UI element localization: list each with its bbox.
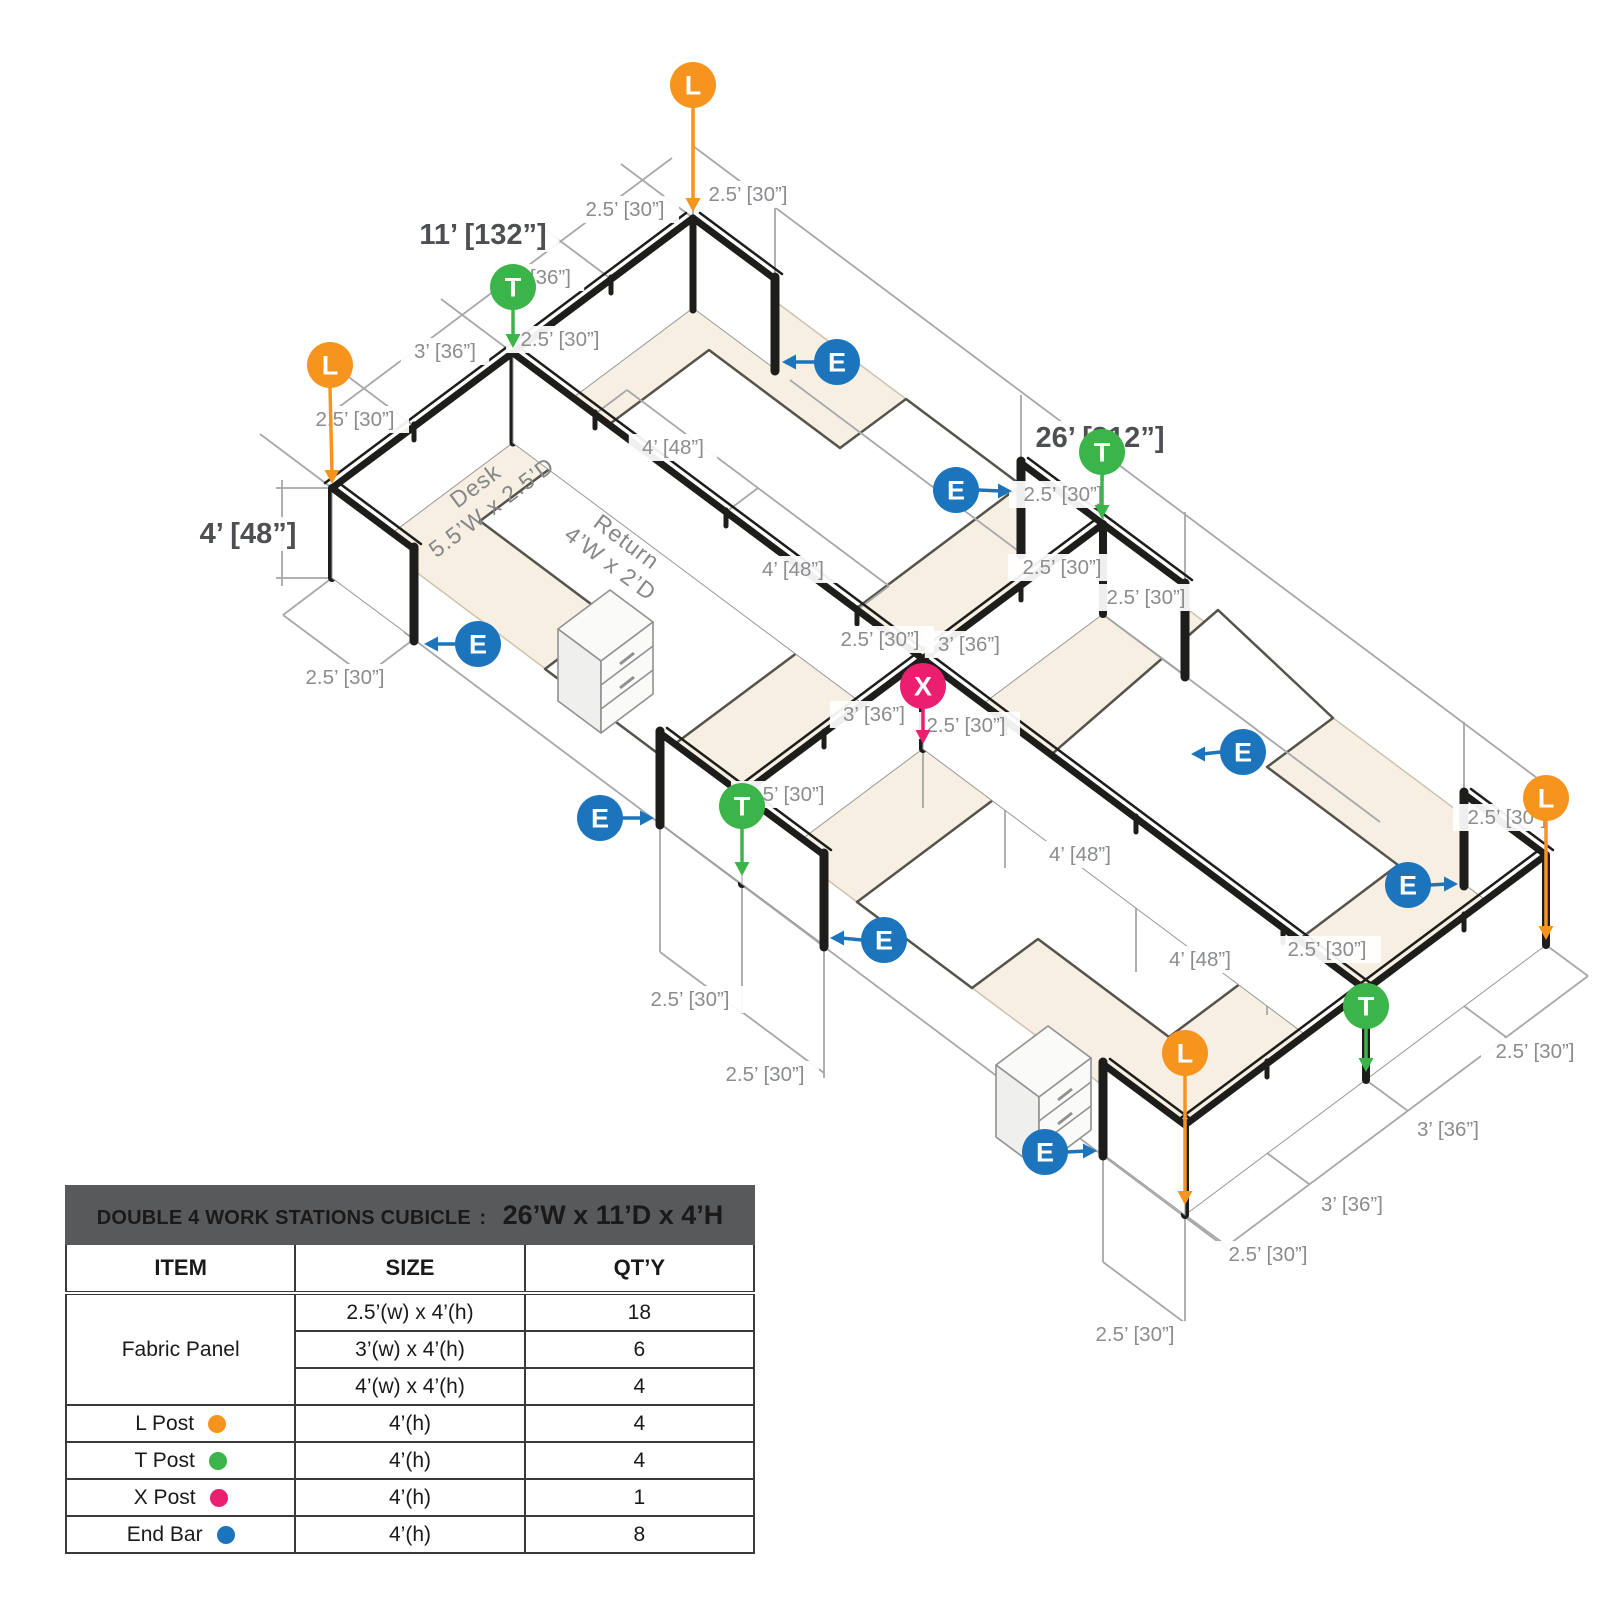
svg-text:4’ [48”]: 4’ [48”] xyxy=(1169,948,1231,971)
svg-text:2.5’ [30”]: 2.5’ [30”] xyxy=(1495,1040,1574,1063)
table-row: X Post 4’(h) 1 xyxy=(66,1479,754,1516)
dim-label: 2.5’ [30”] xyxy=(826,626,934,653)
svg-text:2.5’ [30”]: 2.5’ [30”] xyxy=(926,714,1005,737)
post-marker-e: E xyxy=(424,621,501,667)
dim-label: 4’ [48”] xyxy=(1036,841,1124,868)
svg-text:E: E xyxy=(591,804,609,834)
table-row: L Post 4’(h) 4 xyxy=(66,1405,754,1442)
svg-text:L: L xyxy=(322,351,339,381)
svg-text:2.5’ [30”]: 2.5’ [30”] xyxy=(725,1063,804,1086)
dim-label: 2.5’ [30”] xyxy=(1273,936,1381,963)
end-bar-size: 4’(h) xyxy=(295,1516,524,1553)
fabric-qty-2: 4 xyxy=(525,1368,754,1405)
svg-text:4’ [48”]: 4’ [48”] xyxy=(642,436,704,459)
fabric-panel-item: Fabric Panel xyxy=(66,1293,295,1405)
svg-text:L: L xyxy=(1177,1039,1194,1069)
svg-text:11’ [132”]: 11’ [132”] xyxy=(419,219,546,251)
svg-text:3’ [36”]: 3’ [36”] xyxy=(1321,1193,1383,1216)
fabric-qty-0: 18 xyxy=(525,1293,754,1331)
fabric-size-1: 3’(w) x 4’(h) xyxy=(295,1331,524,1368)
dim-label: 2.5’ [30”] xyxy=(301,406,409,433)
dim-label: 2.5’ [30”] xyxy=(694,181,802,208)
col-item: ITEM xyxy=(66,1244,295,1293)
dim-label: 2.5’ [30”] xyxy=(711,1061,819,1088)
t-post-size: 4’(h) xyxy=(295,1442,524,1479)
l-post-qty: 4 xyxy=(525,1405,754,1442)
svg-text:4’ [48”]: 4’ [48”] xyxy=(200,518,297,550)
svg-text:2.5’ [30”]: 2.5’ [30”] xyxy=(315,408,394,431)
dim-label: 4’ [48”] xyxy=(749,556,837,583)
col-size: SIZE xyxy=(295,1244,524,1293)
x-post-size: 4’(h) xyxy=(295,1479,524,1516)
svg-text:E: E xyxy=(875,926,893,956)
dim-label: 4’ [48”] xyxy=(1156,946,1244,973)
parts-table: DOUBLE 4 WORK STATIONS CUBICLE : 26’W x … xyxy=(65,1185,755,1554)
dim-label: 2.5’ [30”] xyxy=(1481,1038,1589,1065)
svg-text:2.5’ [30”]: 2.5’ [30”] xyxy=(305,666,384,689)
svg-text:L: L xyxy=(685,71,702,101)
dim-label: 2.5’ [30”] xyxy=(636,986,744,1013)
svg-text:2.5’ [30”]: 2.5’ [30”] xyxy=(1095,1323,1174,1346)
dim-label: 2.5’ [30”] xyxy=(506,326,614,353)
svg-text:2.5’ [30”]: 2.5’ [30”] xyxy=(1106,586,1185,609)
table-title-row: DOUBLE 4 WORK STATIONS CUBICLE : 26’W x … xyxy=(66,1186,754,1244)
dim-label: 3’ [36”] xyxy=(925,631,1013,658)
x-post-item: X Post xyxy=(134,1486,196,1510)
dim-label: 4’ [48”] xyxy=(629,434,717,461)
t-post-qty: 4 xyxy=(525,1442,754,1479)
bold-dim-label: 11’ [132”] xyxy=(407,218,560,252)
l-post-dot xyxy=(208,1415,226,1433)
svg-text:2.5’ [30”]: 2.5’ [30”] xyxy=(840,628,919,651)
svg-text:E: E xyxy=(1234,738,1252,768)
end-bar-qty: 8 xyxy=(525,1516,754,1553)
svg-text:2.5’ [30”]: 2.5’ [30”] xyxy=(650,988,729,1011)
svg-text:X: X xyxy=(914,672,932,702)
col-qty: QT’Y xyxy=(525,1244,754,1293)
l-post-size: 4’(h) xyxy=(295,1405,524,1442)
table-row: T Post 4’(h) 4 xyxy=(66,1442,754,1479)
svg-text:E: E xyxy=(469,630,487,660)
svg-text:3’ [36”]: 3’ [36”] xyxy=(843,703,905,726)
table-title-text: DOUBLE 4 WORK STATIONS CUBICLE xyxy=(97,1207,471,1229)
svg-text:E: E xyxy=(1036,1138,1054,1168)
svg-text:2.5’ [30”]: 2.5’ [30”] xyxy=(1023,483,1102,506)
dim-label: 3’ [36”] xyxy=(401,338,489,365)
t-post-dot xyxy=(209,1452,227,1470)
end-bar-dot xyxy=(217,1526,235,1544)
table-header-row: ITEM SIZE QT’Y xyxy=(66,1244,754,1293)
svg-text:2.5’ [30”]: 2.5’ [30”] xyxy=(520,328,599,351)
post-marker-e: E xyxy=(830,917,907,963)
svg-text:2.5’ [30”]: 2.5’ [30”] xyxy=(708,183,787,206)
end-bar-item: End Bar xyxy=(127,1523,203,1547)
l-post-item: L Post xyxy=(135,1412,194,1436)
fabric-size-2: 4’(w) x 4’(h) xyxy=(295,1368,524,1405)
dim-label: 2.5’ [30”] xyxy=(912,712,1020,739)
svg-text:2.5’ [30”]: 2.5’ [30”] xyxy=(585,198,664,221)
dim-label: 3’ [36”] xyxy=(1404,1116,1492,1143)
table-row: End Bar 4’(h) 8 xyxy=(66,1516,754,1553)
dim-label: 2.5’ [30”] xyxy=(1214,1241,1322,1268)
annotation-layer: 2.5’ [30”]3’ [36”]3’ [36”]2.5’ [30”]2.5’… xyxy=(186,62,1589,1348)
svg-text:T: T xyxy=(505,273,522,303)
svg-text:3’ [36”]: 3’ [36”] xyxy=(938,633,1000,656)
dim-label: 2.5’ [30”] xyxy=(571,196,679,223)
fabric-size-0: 2.5’(w) x 4’(h) xyxy=(295,1293,524,1331)
svg-text:T: T xyxy=(1358,992,1375,1022)
dim-label: 3’ [36”] xyxy=(830,701,918,728)
dim-label: 3’ [36”] xyxy=(1308,1191,1396,1218)
dim-label: 2.5’ [30”] xyxy=(1092,584,1200,611)
t-post-item: T Post xyxy=(135,1449,195,1473)
dim-label: 2.5’ [30”] xyxy=(1008,554,1116,581)
svg-text:E: E xyxy=(947,476,965,506)
post-marker-e: E xyxy=(577,795,654,841)
bold-dim-label: 4’ [48”] xyxy=(186,517,310,551)
svg-text:L: L xyxy=(1538,784,1555,814)
x-post-dot xyxy=(210,1489,228,1507)
cubicle-plan-page: 2.5’ [30”]3’ [36”]3’ [36”]2.5’ [30”]2.5’… xyxy=(0,0,1600,1600)
svg-text:3’ [36”]: 3’ [36”] xyxy=(414,340,476,363)
dim-label: 2.5’ [30”] xyxy=(291,664,399,691)
table-title-sep: : xyxy=(479,1207,486,1229)
post-marker-e: E xyxy=(1022,1129,1097,1175)
svg-text:4’ [48”]: 4’ [48”] xyxy=(762,558,824,581)
svg-text:E: E xyxy=(828,348,846,378)
x-post-qty: 1 xyxy=(525,1479,754,1516)
svg-text:4’ [48”]: 4’ [48”] xyxy=(1049,843,1111,866)
dim-label: 2.5’ [30”] xyxy=(1081,1321,1189,1348)
table-title: DOUBLE 4 WORK STATIONS CUBICLE : 26’W x … xyxy=(66,1186,754,1244)
table-row: Fabric Panel 2.5’(w) x 4’(h) 18 xyxy=(66,1293,754,1331)
svg-text:T: T xyxy=(734,792,751,822)
svg-text:2.5’ [30”]: 2.5’ [30”] xyxy=(1228,1243,1307,1266)
fabric-qty-1: 6 xyxy=(525,1331,754,1368)
table-title-dims: 26’W x 11’D x 4’H xyxy=(503,1200,724,1230)
svg-text:2.5’ [30”]: 2.5’ [30”] xyxy=(1022,556,1101,579)
svg-text:2.5’ [30”]: 2.5’ [30”] xyxy=(1287,938,1366,961)
svg-text:T: T xyxy=(1094,438,1111,468)
svg-text:3’ [36”]: 3’ [36”] xyxy=(1417,1118,1479,1141)
svg-text:E: E xyxy=(1399,871,1417,901)
